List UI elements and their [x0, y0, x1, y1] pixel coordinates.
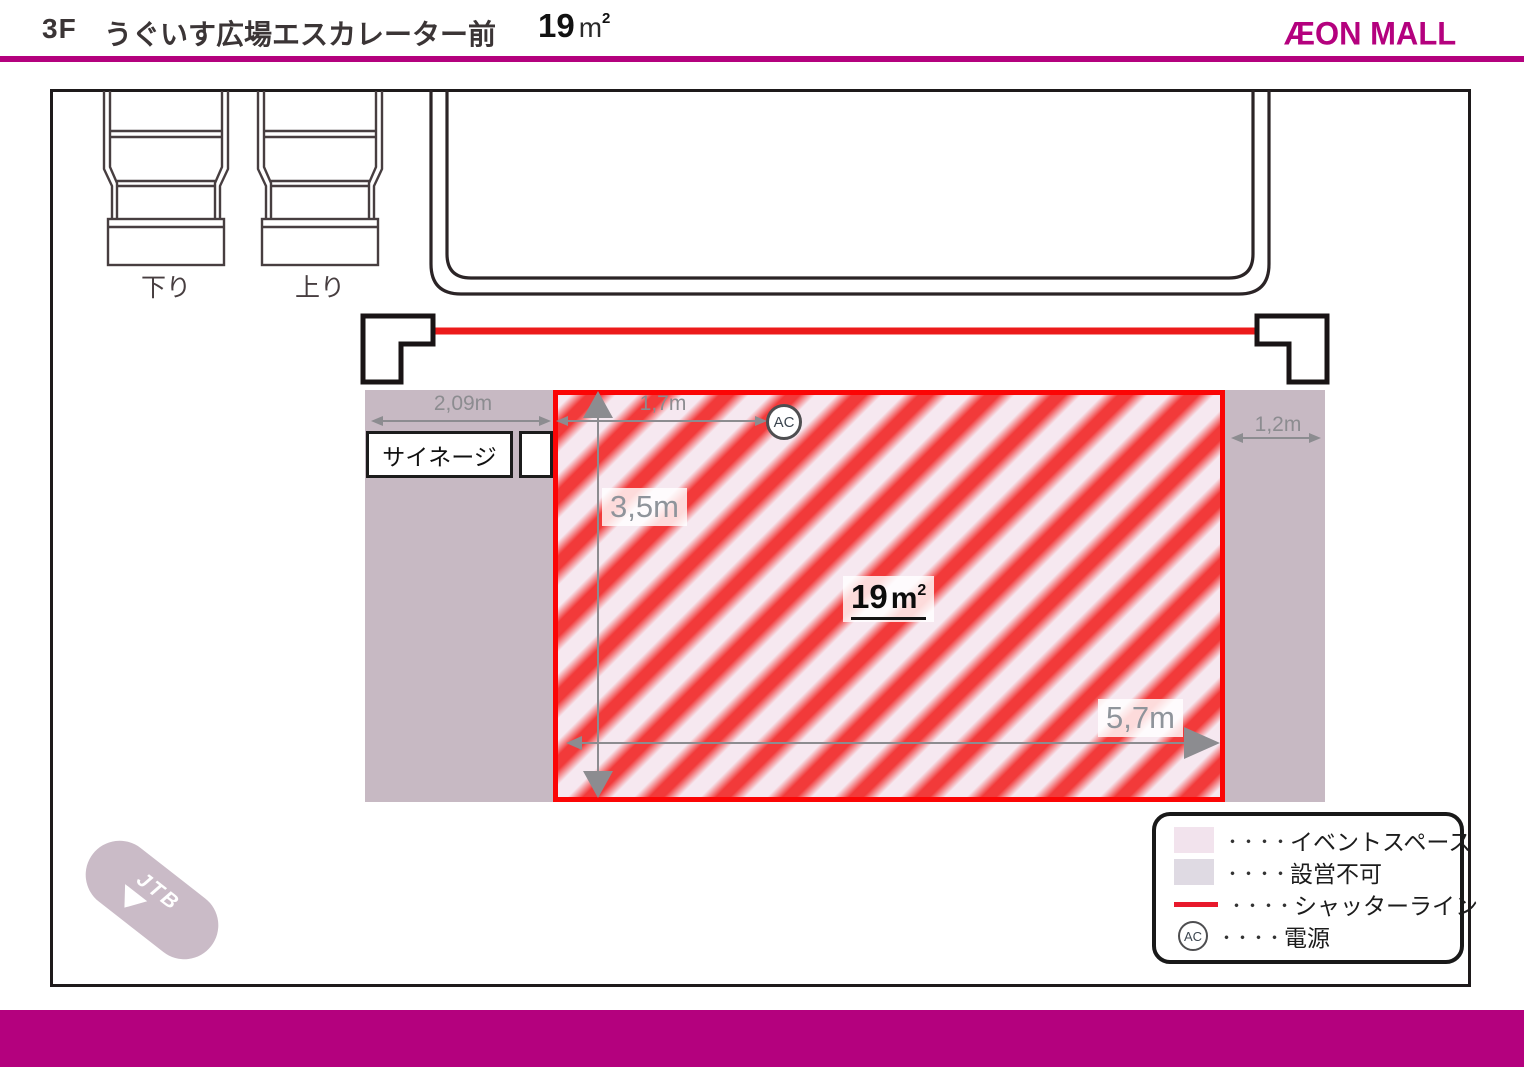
shutter-bracket-right [1257, 316, 1327, 382]
legend-label: イベントスペース [1290, 823, 1471, 857]
legend-item-shutter-line: ・・・・ シャッターライン [1174, 888, 1454, 920]
no-setup-area-right [1225, 390, 1325, 802]
page: 3F うぐいす広場エスカレーター前 19 m 2 ÆON MALL 下り 上り [0, 0, 1524, 1086]
legend-dots: ・・・・ [1224, 828, 1288, 853]
area-superscript: 2 [602, 10, 610, 27]
area-unit: m [891, 582, 918, 616]
dim-3-5m-label: 3,5m [602, 488, 687, 526]
arrow-down-icon [583, 771, 613, 798]
escalators-drawing [92, 91, 398, 267]
signage-label: サイネージ [382, 438, 497, 472]
dim-5-7m-label: 5,7m [1098, 699, 1183, 737]
arrow-left-icon [371, 416, 383, 426]
legend-box: ・・・・ イベントスペース ・・・・ 設営不可 ・・・・ シャッターライン AC… [1152, 812, 1464, 964]
arrow-right-icon [1309, 433, 1321, 443]
dim-arrow-1-2m [1231, 430, 1321, 446]
ac-power-label: AC [1184, 929, 1202, 944]
dim-1-7m-label: 1,7m [608, 392, 718, 416]
escalator-up [258, 91, 382, 265]
arrow-left-icon [556, 416, 568, 426]
legend-label: 電源 [1284, 919, 1330, 953]
escalator-down-label: 下り [121, 268, 211, 304]
arrow-right-icon [539, 416, 551, 426]
signage-side-box [519, 431, 553, 478]
legend-dots: ・・・・ [1218, 924, 1282, 949]
legend-label: シャッターライン [1294, 887, 1478, 921]
legend-label: 設営不可 [1290, 855, 1382, 889]
area-label-19m2: 19 m 2 [843, 576, 934, 622]
legend-dots: ・・・・ [1224, 860, 1288, 885]
area-value: 19 [851, 578, 888, 616]
legend-swatch-event-space [1174, 827, 1214, 853]
legend-ac-icon: AC [1178, 921, 1208, 951]
legend-item-event-space: ・・・・ イベントスペース [1174, 824, 1454, 856]
ac-power-label: AC [774, 414, 795, 431]
floor-label: 3F [42, 13, 77, 45]
arrow-left-icon [1231, 433, 1243, 443]
store-outline [425, 90, 1275, 300]
area-unit: m [579, 12, 602, 44]
legend-dots: ・・・・ [1228, 892, 1292, 917]
legend-swatch-shutter-line [1174, 902, 1218, 907]
shutter-assembly [355, 312, 1335, 386]
legend-item-power: AC ・・・・ 電源 [1174, 920, 1454, 952]
legend-item-no-setup: ・・・・ 設営不可 [1174, 856, 1454, 888]
escalator-down [104, 91, 228, 265]
area-value: 19 [538, 7, 575, 45]
area-superscript: 2 [917, 582, 926, 600]
bottom-brand-bar [0, 1010, 1524, 1067]
ac-power-icon: AC [766, 404, 802, 440]
header-area-badge: 19 m 2 [538, 7, 610, 45]
dim-arrow-2-09m [370, 413, 552, 429]
arrow-left-icon [566, 736, 582, 750]
legend-swatch-no-setup [1174, 859, 1214, 885]
arrow-up-icon [583, 391, 613, 418]
shutter-bracket-left [363, 316, 433, 382]
signage-box: サイネージ [366, 431, 513, 478]
header-rule [0, 56, 1524, 62]
escalator-up-label: 上り [275, 268, 365, 304]
arrow-right-icon [1184, 727, 1220, 759]
aeon-mall-logo: ÆON MALL [1284, 15, 1456, 53]
page-title: うぐいす広場エスカレーター前 [104, 13, 496, 53]
